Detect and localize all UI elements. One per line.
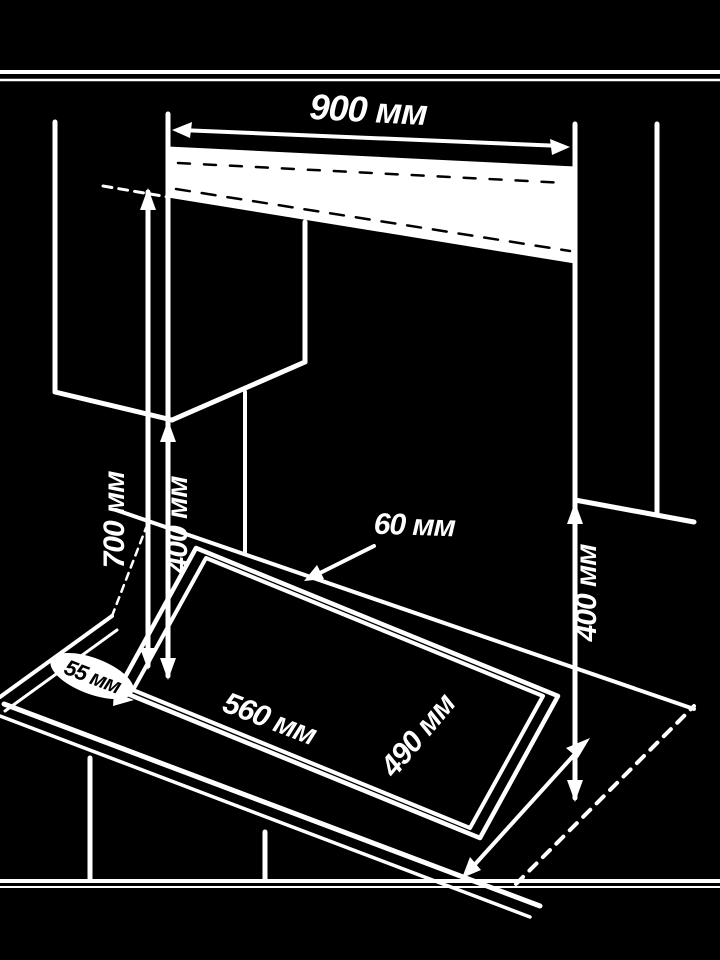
- left-cabinet-bottom-front: [172, 362, 305, 420]
- dimension-400-left-arrow-up: [160, 420, 176, 442]
- dimension-560-label: 560 мм: [218, 686, 321, 752]
- dimension-560: 560 мм: [218, 686, 321, 752]
- hob-cutout: [118, 548, 558, 838]
- dimension-60-label: 60 мм: [373, 508, 456, 544]
- dimension-490-arrow-rear: [566, 738, 590, 758]
- dimension-900-line: [180, 130, 562, 146]
- dimension-900-label: 900 мм: [309, 86, 429, 133]
- left-cabinet-bottom-left: [55, 392, 172, 420]
- hob-outline: [133, 558, 543, 828]
- installation-diagram: 900 мм 700 мм 400 мм 400 мм: [0, 0, 720, 960]
- cutout-outline: [118, 548, 558, 838]
- dimension-400-right-arrow-up: [567, 502, 583, 524]
- dimension-400-left-arrow-down: [160, 658, 176, 680]
- dimension-60-arrow: [304, 565, 324, 581]
- dimension-490-line: [468, 744, 584, 872]
- dimension-700: 700 мм: [98, 188, 156, 670]
- diagram-canvas: 900 мм 700 мм 400 мм 400 мм: [0, 0, 720, 960]
- base-cabinet: [90, 758, 265, 880]
- right-cabinet-bottom: [575, 500, 694, 522]
- dimension-400-right-arrow-down: [567, 780, 583, 802]
- dimension-60: 60 мм: [304, 508, 456, 581]
- dimension-490-label: 490 мм: [374, 687, 463, 784]
- dimension-400-right-label: 400 мм: [570, 544, 603, 643]
- dimension-60-leader: [312, 546, 374, 577]
- right-wall-cabinet: [575, 124, 694, 522]
- dimension-900-arrow-right: [550, 139, 570, 155]
- dimension-490: 490 мм: [374, 687, 590, 878]
- dimension-700-label: 700 мм: [98, 471, 131, 569]
- hood-bottom-extension-dashed: [103, 186, 168, 197]
- dimension-900: 900 мм: [172, 86, 570, 155]
- cooker-hood: [103, 148, 575, 262]
- worktop-right-break-dashed: [516, 706, 694, 884]
- dimension-900-arrow-left: [172, 122, 192, 138]
